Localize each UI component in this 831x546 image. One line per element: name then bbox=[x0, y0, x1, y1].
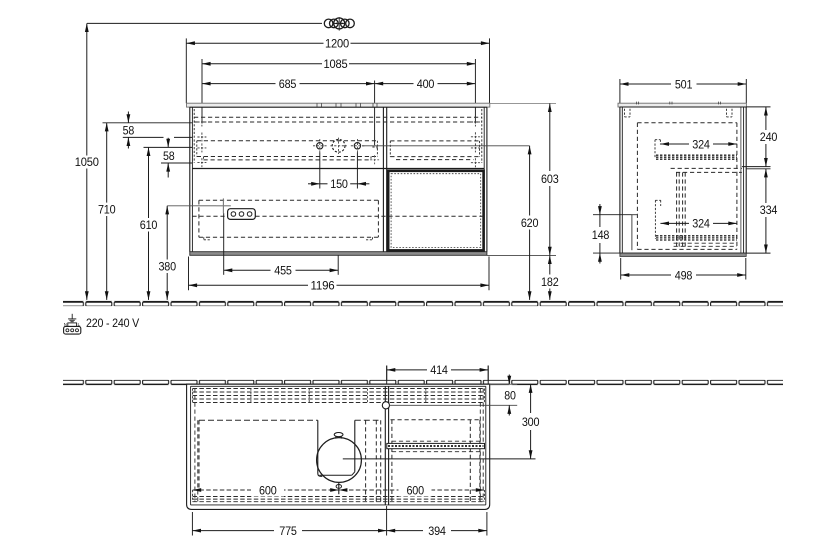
svg-text:324: 324 bbox=[692, 137, 710, 151]
svg-text:1200: 1200 bbox=[325, 37, 349, 51]
svg-text:1050: 1050 bbox=[75, 155, 99, 169]
svg-text:182: 182 bbox=[541, 275, 559, 289]
svg-text:498: 498 bbox=[675, 268, 693, 282]
svg-text:600: 600 bbox=[259, 483, 277, 497]
svg-text:220 - 240 V: 220 - 240 V bbox=[86, 318, 139, 330]
svg-text:240: 240 bbox=[760, 130, 778, 144]
svg-text:501: 501 bbox=[675, 77, 693, 91]
svg-text:80: 80 bbox=[504, 389, 516, 403]
svg-text:58: 58 bbox=[123, 123, 135, 137]
svg-text:324: 324 bbox=[692, 217, 710, 231]
svg-text:1085: 1085 bbox=[324, 57, 348, 71]
svg-text:603: 603 bbox=[541, 172, 559, 186]
svg-text:414: 414 bbox=[430, 363, 448, 377]
svg-text:334: 334 bbox=[760, 203, 778, 217]
svg-text:400: 400 bbox=[417, 77, 435, 91]
svg-text:685: 685 bbox=[279, 77, 297, 91]
svg-text:610: 610 bbox=[140, 218, 158, 232]
svg-text:150: 150 bbox=[330, 177, 348, 191]
svg-text:380: 380 bbox=[158, 259, 176, 273]
svg-text:148: 148 bbox=[592, 228, 610, 242]
svg-text:775: 775 bbox=[279, 524, 297, 538]
svg-text:1196: 1196 bbox=[311, 279, 335, 293]
svg-text:600: 600 bbox=[406, 483, 424, 497]
svg-text:455: 455 bbox=[274, 264, 292, 278]
svg-text:394: 394 bbox=[428, 524, 446, 538]
svg-text:300: 300 bbox=[522, 415, 540, 429]
svg-text:620: 620 bbox=[521, 216, 539, 230]
svg-text:710: 710 bbox=[98, 202, 116, 216]
svg-text:58: 58 bbox=[163, 149, 175, 163]
